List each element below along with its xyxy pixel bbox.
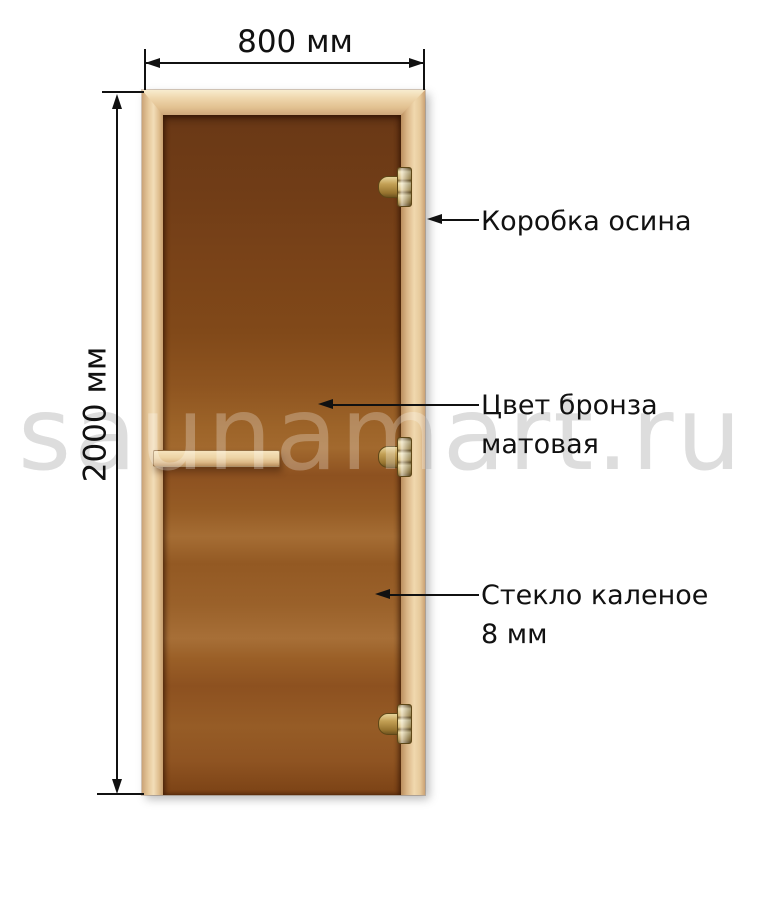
callout-glass-type-label: Стекло каленое 8 мм xyxy=(481,576,708,654)
width-dimension-line xyxy=(146,62,424,64)
arrowhead-down-icon xyxy=(112,779,122,794)
extension-line-right xyxy=(423,49,425,90)
extension-line-left xyxy=(144,49,146,90)
hinge-barrel-icon xyxy=(397,167,412,207)
callout-glass-type-line2: 8 мм xyxy=(481,615,708,654)
hinge-bottom xyxy=(378,704,412,744)
callout-line xyxy=(441,219,479,221)
hinge-leaf-icon xyxy=(378,446,399,468)
sauna-door xyxy=(142,90,425,795)
width-dimension-label: 800 мм xyxy=(190,24,400,60)
callout-glass-color-line1: Цвет бронза xyxy=(481,386,658,425)
arrowhead-left-icon xyxy=(427,214,442,224)
callout-line xyxy=(332,404,479,406)
callout-frame-line1: Коробка осина xyxy=(481,206,692,237)
arrowhead-left-icon xyxy=(318,399,333,409)
callout-glass-color-label: Цвет бронза матовая xyxy=(481,386,658,464)
arrowhead-left-icon xyxy=(145,58,160,68)
height-dimension-line xyxy=(116,97,118,791)
door-handle xyxy=(153,450,280,467)
callout-frame-label: Коробка осина xyxy=(481,202,692,241)
arrowhead-up-icon xyxy=(112,94,122,109)
door-frame-top-rail xyxy=(142,90,425,115)
door-frame-left-stile xyxy=(142,90,163,795)
hinge-top xyxy=(378,167,412,207)
hinge-barrel-icon xyxy=(397,704,412,744)
height-dimension-label: 2000 мм xyxy=(78,335,111,495)
arrowhead-right-icon xyxy=(409,58,424,68)
hinge-leaf-icon xyxy=(378,713,399,735)
hinge-barrel-icon xyxy=(397,437,412,477)
extension-line-top xyxy=(102,91,144,93)
sauna-door-diagram: saunamart.ru saunamart.ru 800 мм 2000 м xyxy=(0,0,762,900)
hinge-leaf-icon xyxy=(378,176,399,198)
hinge-middle xyxy=(378,437,412,477)
arrowhead-left-icon xyxy=(375,589,390,599)
callout-glass-type-line1: Стекло каленое xyxy=(481,576,708,615)
callout-line xyxy=(389,594,479,596)
callout-glass-color-line2: матовая xyxy=(481,425,658,464)
extension-line-bottom xyxy=(97,793,144,795)
